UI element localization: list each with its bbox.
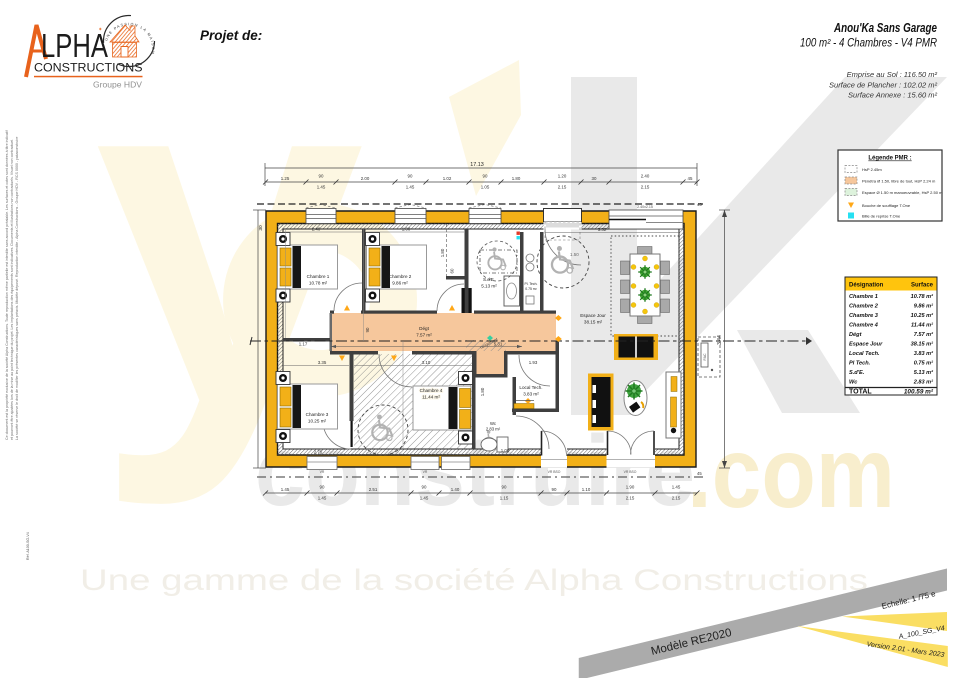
svg-text:1.80: 1.80 (480, 387, 485, 396)
svg-text:2.00: 2.00 (361, 176, 370, 181)
svg-text:Pénétra Ø 1.50, libre de tout,: Pénétra Ø 1.50, libre de tout, HsP 2.24 … (862, 179, 936, 184)
svg-text:38.15 m²: 38.15 m² (911, 341, 934, 348)
svg-text:10.78 m²: 10.78 m² (309, 281, 328, 286)
svg-text:90: 90 (552, 487, 557, 492)
svg-text:3.44: 3.44 (717, 335, 723, 345)
svg-text:1.45: 1.45 (281, 487, 290, 492)
svg-text:1.05: 1.05 (481, 185, 490, 190)
svg-text:90: 90 (319, 174, 324, 179)
svg-text:1.93: 1.93 (529, 360, 538, 365)
svg-text:1.00: 1.00 (402, 227, 411, 232)
svg-text:5.13 m²: 5.13 m² (914, 369, 933, 376)
svg-text:90: 90 (365, 327, 370, 332)
svg-text:La société se réserve le droit: La société se réserve le droit de modifi… (15, 137, 19, 440)
svg-text:Surface de Plancher : 102.02 m: Surface de Plancher : 102.02 m² (829, 81, 937, 90)
svg-text:1.80: 1.80 (512, 176, 521, 181)
svg-text:38.15 m²: 38.15 m² (584, 320, 603, 325)
svg-text:Chambre 4: Chambre 4 (849, 323, 879, 329)
svg-text:1.15: 1.15 (500, 496, 509, 501)
svg-text:Dégt: Dégt (849, 332, 863, 338)
svg-text:17.13: 17.13 (470, 162, 484, 168)
svg-text:Wc: Wc (490, 421, 496, 426)
svg-text:90: 90 (408, 174, 413, 179)
svg-text:Bille de reprise T.One: Bille de reprise T.One (862, 214, 901, 219)
svg-text:1.02: 1.02 (443, 176, 452, 181)
svg-text:Pl Tech.: Pl Tech. (849, 361, 871, 367)
svg-text:1.90: 1.90 (626, 485, 635, 490)
svg-text:Pl. Tech.: Pl. Tech. (525, 282, 538, 286)
svg-text:45: 45 (697, 202, 702, 207)
svg-text:45: 45 (697, 471, 702, 476)
svg-text:Wc: Wc (849, 380, 858, 386)
svg-text:CONSTRUCTIONS: CONSTRUCTIONS (34, 61, 143, 75)
svg-text:7.57 m²: 7.57 m² (416, 333, 432, 338)
svg-text:S.d'E.: S.d'E. (483, 277, 495, 282)
svg-text:S.d'E.: S.d'E. (849, 370, 865, 376)
svg-text:5.13 m²: 5.13 m² (481, 284, 497, 289)
svg-text:Groupe HDV: Groupe HDV (93, 80, 142, 90)
svg-text:Espace Jour: Espace Jour (580, 313, 606, 318)
svg-text:3.10: 3.10 (422, 360, 431, 365)
svg-text:90: 90 (422, 485, 427, 490)
svg-text:Surface: Surface (911, 283, 934, 289)
svg-text:Anou'Ka Sans Garage: Anou'Ka Sans Garage (833, 21, 937, 35)
svg-text:Réf. A100-SG-V4: Réf. A100-SG-V4 (26, 532, 30, 560)
svg-text:1.45: 1.45 (406, 185, 415, 190)
svg-text:9.86 m²: 9.86 m² (914, 303, 933, 310)
svg-text:et pourront être ajustées lors: et pourront être ajustées lors de la mis… (10, 139, 14, 440)
svg-text:5.31: 5.31 (494, 342, 503, 347)
svg-text:3.83 m²: 3.83 m² (523, 392, 539, 397)
svg-text:Espace Ø 1.50 m manoeuvrable,: Espace Ø 1.50 m manoeuvrable, HsP 2.50 m (862, 190, 943, 195)
svg-text:Emprise au Sol : 116.50 m²: Emprise au Sol : 116.50 m² (847, 70, 938, 79)
svg-text:Chambre 3: Chambre 3 (849, 313, 879, 319)
svg-text:10.78 m²: 10.78 m² (911, 293, 934, 300)
svg-text:10.25 m²: 10.25 m² (308, 419, 327, 424)
svg-text:Local Tech.: Local Tech. (519, 385, 542, 390)
svg-text:3.83 m²: 3.83 m² (914, 350, 933, 357)
svg-text:1.00: 1.00 (501, 448, 510, 453)
svg-text:7.57 m²: 7.57 m² (914, 331, 933, 338)
svg-text:5.32: 5.32 (598, 227, 607, 232)
svg-text:Chambre 2: Chambre 2 (849, 304, 879, 310)
svg-text:Espace Jour: Espace Jour (849, 342, 883, 348)
svg-text:2.83 m²: 2.83 m² (913, 379, 933, 386)
svg-text:Désignation: Désignation (849, 283, 884, 289)
svg-text:0.75 m²: 0.75 m² (914, 360, 933, 367)
svg-text:1.50: 1.50 (570, 252, 579, 257)
svg-text:1.10: 1.10 (582, 487, 591, 492)
svg-text:1.40: 1.40 (451, 487, 460, 492)
svg-text:Chambre 2: Chambre 2 (389, 274, 412, 279)
svg-text:90: 90 (502, 485, 507, 490)
svg-text:Projet de:: Projet de: (200, 28, 262, 43)
svg-text:100 m² - 4 Chambres - V4 PMR: 100 m² - 4 Chambres - V4 PMR (800, 38, 937, 50)
svg-text:HsP 2.45m: HsP 2.45m (862, 167, 882, 172)
svg-text:PAC: PAC (703, 353, 707, 360)
svg-text:30: 30 (592, 176, 597, 181)
svg-text:11.44 m²: 11.44 m² (911, 322, 933, 329)
svg-text:.com: .com (687, 417, 895, 529)
svg-text:1.45: 1.45 (420, 496, 429, 501)
svg-text:TOTAL: TOTAL (849, 389, 872, 396)
svg-text:1.80: 1.80 (440, 248, 445, 257)
svg-text:2.15: 2.15 (558, 185, 567, 190)
svg-text:Une gamme de la société Alpha: Une gamme de la société Alpha Constructi… (80, 564, 868, 597)
svg-text:45: 45 (688, 176, 693, 181)
svg-text:3.35: 3.35 (318, 360, 327, 365)
svg-text:Chambre 1: Chambre 1 (849, 294, 878, 300)
svg-text:2.15: 2.15 (626, 496, 635, 501)
svg-text:2.40: 2.40 (312, 227, 321, 232)
svg-text:2.40: 2.40 (641, 174, 650, 179)
svg-text:1.20: 1.20 (558, 174, 567, 179)
svg-text:0.75 m²: 0.75 m² (525, 287, 537, 291)
svg-text:2.51: 2.51 (369, 487, 378, 492)
svg-text:Légende PMR :: Légende PMR : (868, 156, 911, 162)
svg-text:2.40x2.15: 2.40x2.15 (637, 205, 653, 209)
svg-text:VR BSO: VR BSO (548, 470, 561, 474)
svg-text:90: 90 (320, 485, 325, 490)
svg-text:Chambre 1: Chambre 1 (307, 274, 330, 279)
svg-text:2.15: 2.15 (672, 496, 681, 501)
svg-text:LPHA: LPHA (41, 27, 108, 64)
svg-text:10.25 m²: 10.25 m² (911, 312, 934, 319)
svg-text:1.45: 1.45 (318, 496, 327, 501)
svg-text:Chambre 3: Chambre 3 (306, 412, 329, 417)
svg-text:60: 60 (450, 268, 455, 273)
svg-text:Local Tech.: Local Tech. (849, 351, 880, 357)
svg-text:2.75: 2.75 (314, 450, 323, 455)
svg-text:2.15: 2.15 (641, 185, 650, 190)
svg-text:1.17: 1.17 (299, 342, 308, 347)
svg-text:Surface Annexe : 15.60 m²: Surface Annexe : 15.60 m² (848, 91, 937, 100)
svg-text:Bouche de soufflage T.One: Bouche de soufflage T.One (862, 203, 911, 208)
svg-text:100.59 m²: 100.59 m² (904, 389, 934, 396)
svg-text:VR: VR (423, 470, 428, 474)
svg-text:VR: VR (320, 470, 325, 474)
svg-text:Dégt: Dégt (419, 326, 429, 331)
svg-text:1.45: 1.45 (317, 185, 326, 190)
svg-text:30: 30 (258, 225, 264, 231)
svg-text:Ce document est la propriété e: Ce document est la propriété exclusive d… (5, 130, 9, 440)
svg-text:9.86 m²: 9.86 m² (392, 281, 408, 286)
svg-text:2.83 m²: 2.83 m² (486, 427, 501, 432)
svg-text:11.44 m²: 11.44 m² (422, 395, 440, 400)
svg-text:1.45: 1.45 (672, 485, 681, 490)
svg-text:Chambre 4: Chambre 4 (420, 388, 443, 393)
svg-text:1.25: 1.25 (281, 176, 290, 181)
svg-text:90: 90 (483, 174, 488, 179)
svg-text:VR BSO: VR BSO (624, 470, 637, 474)
